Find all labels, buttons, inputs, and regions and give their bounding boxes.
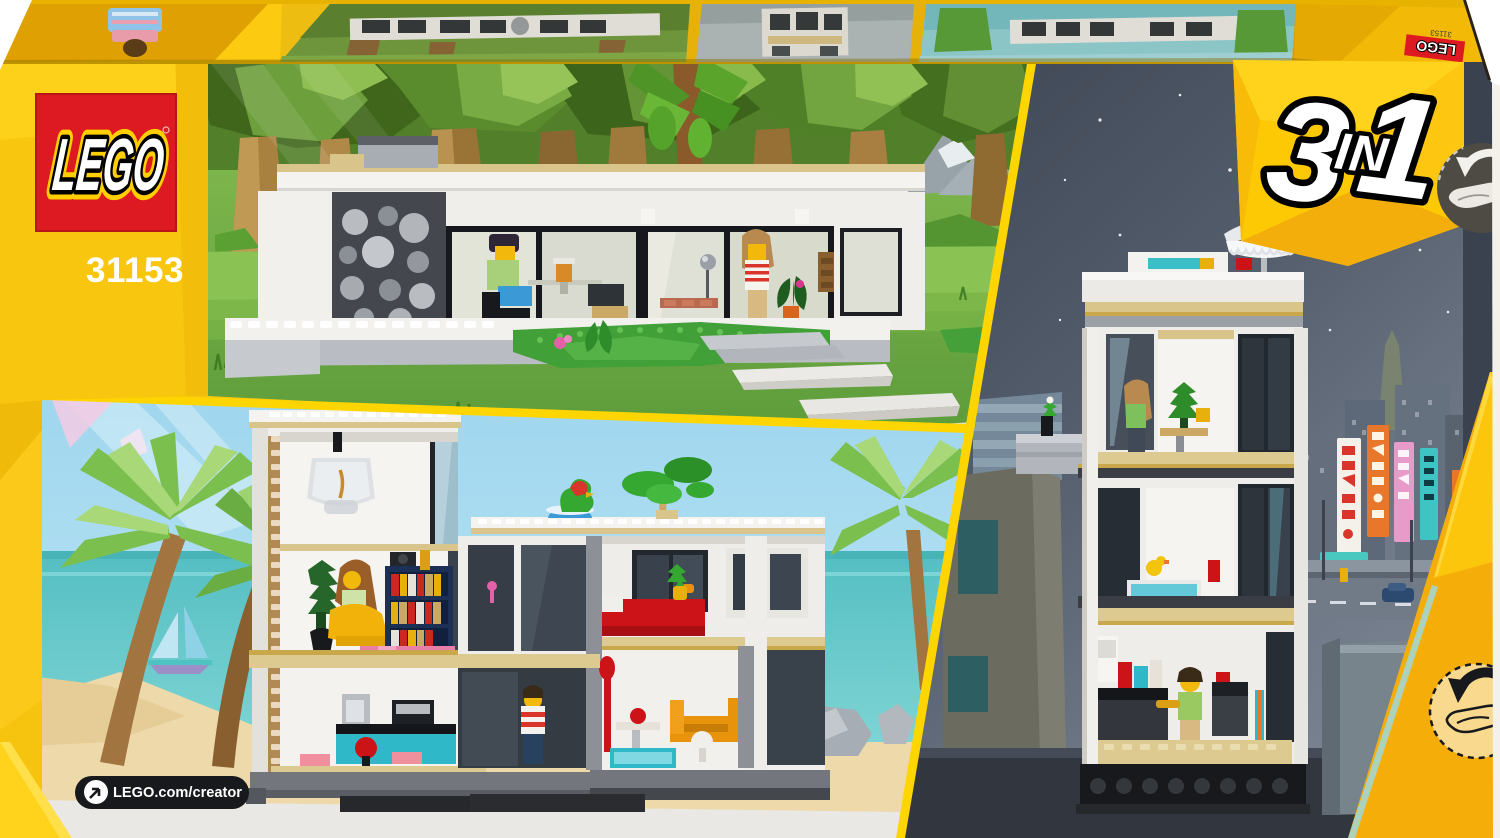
svg-text:LEGO.com/creator: LEGO.com/creator <box>113 785 242 801</box>
svg-text:31153: 31153 <box>86 251 184 290</box>
svg-text:LEGO: LEGO <box>49 123 168 206</box>
